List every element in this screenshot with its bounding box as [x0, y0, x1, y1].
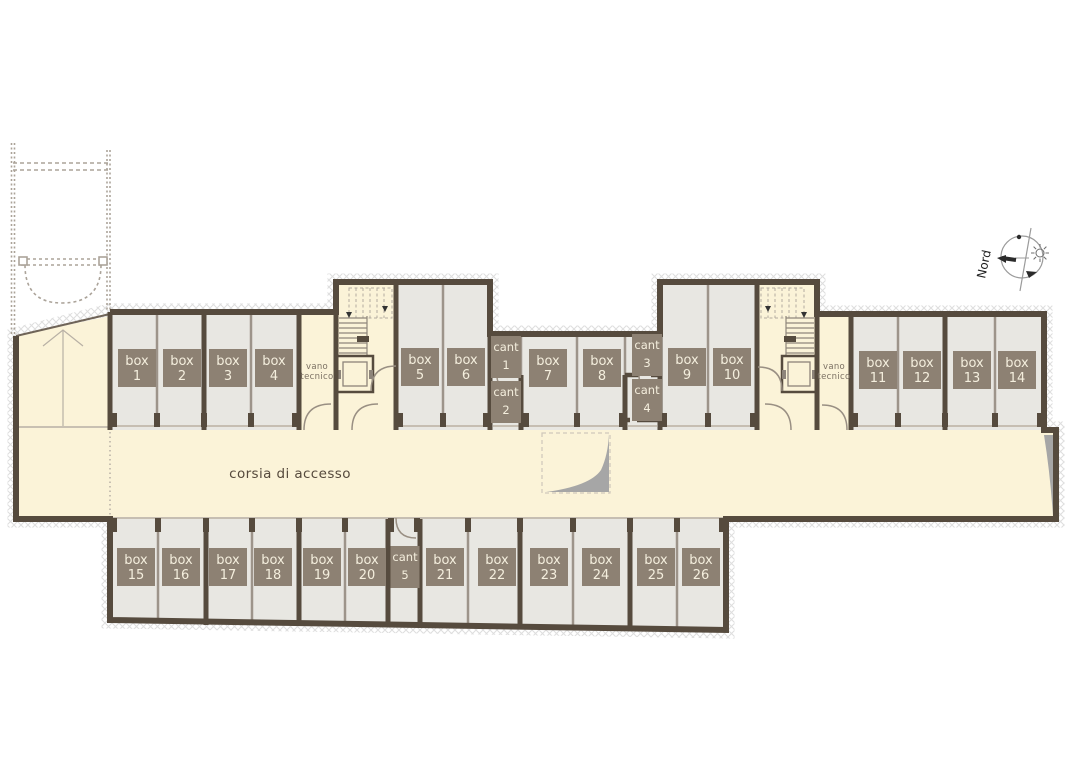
room-label-text: box	[124, 553, 148, 568]
north-needle-icon	[997, 255, 1016, 263]
elevator-left	[337, 356, 373, 392]
room-label-text: 10	[724, 368, 741, 383]
upper-level-dashed-outline	[12, 143, 111, 335]
room-label-box-25: box25	[637, 548, 675, 586]
room-label-text: box	[216, 553, 240, 568]
room-label-text: 4	[270, 369, 278, 384]
room-label-box-8: box8	[583, 349, 621, 387]
room-label-text: box	[537, 553, 561, 568]
room-label-text: box	[433, 553, 457, 568]
room-label-text: box	[675, 353, 699, 368]
room-label-text: 22	[489, 568, 506, 583]
room-label-box-19: box19	[303, 548, 341, 586]
room-label-text: box	[408, 353, 432, 368]
room-label-box-11: box11	[859, 351, 897, 389]
room-label-text: box	[536, 354, 560, 369]
technical-room-left-label: vano	[306, 362, 328, 372]
room-label-box-18: box18	[254, 548, 292, 586]
room-label-box-16: box16	[162, 548, 200, 586]
garage-gate-arc-right	[62, 265, 101, 303]
room-label-text: 3	[643, 356, 650, 370]
room-label-text: box	[125, 354, 149, 369]
room-label-text: box	[589, 553, 613, 568]
room-label-text: box	[169, 553, 193, 568]
north-compass: Nord	[974, 228, 1049, 291]
room-label-text: 5	[416, 368, 424, 383]
room-label-box-4: box4	[255, 349, 293, 387]
room-label-box-3: box3	[209, 349, 247, 387]
room-label-text: 7	[544, 369, 552, 384]
room-label-text: 26	[693, 568, 710, 583]
compass-dot	[1017, 235, 1021, 239]
room-label-text: box	[262, 354, 286, 369]
room-label-box-15: box15	[117, 548, 155, 586]
room-label-text: 4	[643, 401, 650, 415]
room-label-text: 14	[1009, 371, 1026, 386]
room-label-text: box	[689, 553, 713, 568]
room-label-box-12: box12	[903, 351, 941, 389]
room-label-cant-1: cant1	[491, 336, 521, 378]
room-label-text: 19	[314, 568, 331, 583]
technical-room-right-label: vano	[823, 362, 845, 372]
room-label-text: box	[170, 354, 194, 369]
room-label-text: box	[216, 354, 240, 369]
room-label-cant-2: cant2	[491, 381, 521, 423]
room-label-box-5: box5	[401, 348, 439, 386]
room-label-text: cant	[493, 385, 519, 399]
room-label-text: box	[355, 553, 379, 568]
room-label-box-1: box1	[118, 349, 156, 387]
room-label-text: 16	[173, 568, 190, 583]
room-label-box-10: box10	[713, 348, 751, 386]
room-label-text: 13	[964, 371, 981, 386]
room-label-text: 9	[683, 368, 691, 383]
room-label-text: cant	[493, 340, 519, 354]
room-label-text: box	[960, 356, 984, 371]
room-label-box-7: box7	[529, 349, 567, 387]
room-label-box-9: box9	[668, 348, 706, 386]
room-label-text: 6	[462, 368, 470, 383]
room-label-text: 20	[359, 568, 376, 583]
room-label-text: 5	[401, 568, 408, 582]
room-label-text: 3	[224, 369, 232, 384]
room-label-cant-4: cant4	[632, 379, 662, 421]
room-label-box-24: box24	[582, 548, 620, 586]
garage-gate-arc-left	[25, 265, 62, 303]
room-label-text: 12	[914, 371, 931, 386]
room-label-text: box	[644, 553, 668, 568]
room-label-text: cant	[392, 550, 418, 564]
room-label-text: box	[720, 353, 744, 368]
room-label-box-17: box17	[209, 548, 247, 586]
room-label-text: cant	[634, 383, 660, 397]
technical-room-left-label: tecnico	[301, 372, 334, 382]
room-label-cant-3: cant3	[632, 334, 662, 376]
room-label-text: 21	[437, 568, 454, 583]
floor-plan-canvas: vano tecnico vano tecnico corsia di acce…	[0, 0, 1076, 780]
room-label-text: 18	[265, 568, 282, 583]
room-label-box-2: box2	[163, 349, 201, 387]
room-label-box-13: box13	[953, 351, 991, 389]
room-label-text: 2	[178, 369, 186, 384]
room-label-text: 24	[593, 568, 610, 583]
room-label-text: 1	[133, 369, 141, 384]
room-label-text: 8	[598, 369, 606, 384]
room-label-cant-5: cant5	[391, 546, 420, 588]
room-label-text: box	[261, 553, 285, 568]
room-label-text: box	[485, 553, 509, 568]
room-label-box-6: box6	[447, 348, 485, 386]
room-label-text: 17	[220, 568, 237, 583]
room-label-text: 11	[870, 371, 887, 386]
room-label-text: 1	[502, 358, 509, 372]
corridor-label: corsia di accesso	[229, 466, 351, 482]
room-label-text: 23	[541, 568, 558, 583]
room-label-text: box	[590, 354, 614, 369]
technical-room-right-label: tecnico	[818, 372, 851, 382]
room-label-box-26: box26	[682, 548, 720, 586]
room-label-text: box	[1005, 356, 1029, 371]
room-label-box-23: box23	[530, 548, 568, 586]
room-label-text: box	[454, 353, 478, 368]
sun-icon	[1031, 244, 1049, 262]
north-label: Nord	[974, 249, 994, 280]
room-label-box-21: box21	[426, 548, 464, 586]
room-label-box-14: box14	[998, 351, 1036, 389]
room-label-text: 15	[128, 568, 145, 583]
room-label-text: 25	[648, 568, 665, 583]
room-label-box-22: box22	[478, 548, 516, 586]
room-label-text: box	[910, 356, 934, 371]
room-label-text: cant	[634, 338, 660, 352]
floor-plan-drawing: vano tecnico vano tecnico corsia di acce…	[0, 0, 1076, 780]
elevator-right	[782, 356, 816, 392]
room-label-box-20: box20	[348, 548, 386, 586]
room-label-text: 2	[502, 403, 509, 417]
room-label-text: box	[310, 553, 334, 568]
room-label-text: box	[866, 356, 890, 371]
